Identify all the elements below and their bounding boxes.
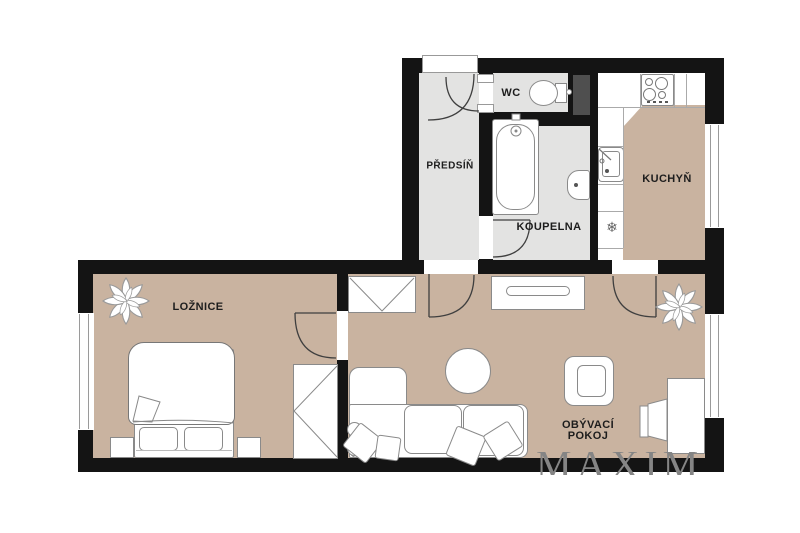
kitchen-sink-basin bbox=[602, 151, 620, 177]
bed-pillow-right bbox=[184, 427, 223, 451]
counter-edge bbox=[598, 107, 705, 108]
snowflake-icon: ❄ bbox=[602, 220, 622, 236]
sink-drain bbox=[605, 169, 609, 173]
wall-lower-top bbox=[78, 260, 419, 274]
nightstand-right bbox=[237, 437, 261, 458]
stove-knob bbox=[659, 101, 662, 103]
window-bedroom bbox=[74, 313, 94, 430]
room-label-living-room-line2: POKOJ bbox=[568, 430, 609, 442]
room-label-hallway: PŘEDSÍŇ bbox=[426, 161, 473, 172]
counter-line bbox=[598, 146, 623, 147]
counter-line bbox=[686, 74, 687, 107]
room-label-wc: WC bbox=[501, 87, 520, 99]
armchair-seat bbox=[577, 365, 606, 397]
stove-burner-small-tl bbox=[645, 78, 653, 86]
bed-duvet bbox=[128, 342, 235, 425]
wall-right-top bbox=[705, 58, 724, 126]
stove-knob bbox=[665, 101, 668, 103]
wardrobe-bedroom bbox=[293, 364, 338, 459]
stove-burner-small-br bbox=[658, 91, 666, 99]
sofa-pillow bbox=[374, 434, 401, 461]
kitchen-living-opening bbox=[612, 260, 658, 274]
sideboard-handle bbox=[506, 286, 570, 296]
wc-door-jamb-bottom bbox=[477, 104, 494, 113]
bed-pillow-left bbox=[139, 427, 178, 451]
stove-knob bbox=[647, 101, 650, 103]
room-label-bedroom: LOŽNICE bbox=[172, 301, 223, 313]
counter-line bbox=[598, 248, 623, 249]
utility-shaft bbox=[573, 75, 590, 115]
watermark-text: MAXIM bbox=[536, 452, 732, 475]
stove-knob bbox=[653, 101, 656, 103]
washbasin-drain bbox=[574, 183, 578, 187]
floor-plan: ❄ bbox=[0, 0, 800, 533]
room-label-living-room: OBÝVACÍ POKOJ bbox=[562, 420, 614, 442]
hallway-living-opening bbox=[424, 260, 478, 274]
wall-bath-kitchen-divider bbox=[590, 112, 598, 262]
washbasin bbox=[567, 170, 590, 200]
window-kitchen bbox=[705, 124, 724, 228]
stove-burner-large-bl bbox=[643, 88, 656, 101]
counter-line bbox=[598, 184, 623, 185]
watermark: MAXIM bbox=[536, 452, 732, 475]
kitchen-floor bbox=[623, 105, 705, 265]
desk bbox=[667, 378, 705, 454]
toilet-bowl bbox=[529, 80, 558, 106]
bedroom-door-opening bbox=[337, 311, 348, 360]
wardrobe-living-room bbox=[348, 276, 416, 313]
wc-door-jamb-top bbox=[477, 74, 494, 83]
bed-frame-line bbox=[136, 450, 232, 451]
bathroom-door-opening bbox=[479, 216, 493, 259]
room-label-bathroom: KOUPELNA bbox=[517, 221, 582, 233]
toilet-knob bbox=[566, 89, 572, 95]
counter-edge bbox=[623, 107, 624, 248]
counter-line bbox=[674, 74, 675, 107]
stove-burner-large-tr bbox=[655, 77, 668, 90]
window-living-room bbox=[705, 314, 724, 418]
nightstand-left bbox=[110, 437, 134, 458]
counter-line bbox=[640, 74, 641, 107]
entrance-door-threshold bbox=[422, 55, 478, 73]
room-label-kitchen: KUCHYŇ bbox=[642, 173, 691, 185]
counter-line bbox=[598, 211, 623, 212]
wall-upper-left bbox=[402, 58, 419, 274]
wall-right-mid bbox=[705, 228, 724, 316]
bathtub-inner bbox=[496, 124, 535, 210]
coffee-table bbox=[445, 348, 491, 394]
